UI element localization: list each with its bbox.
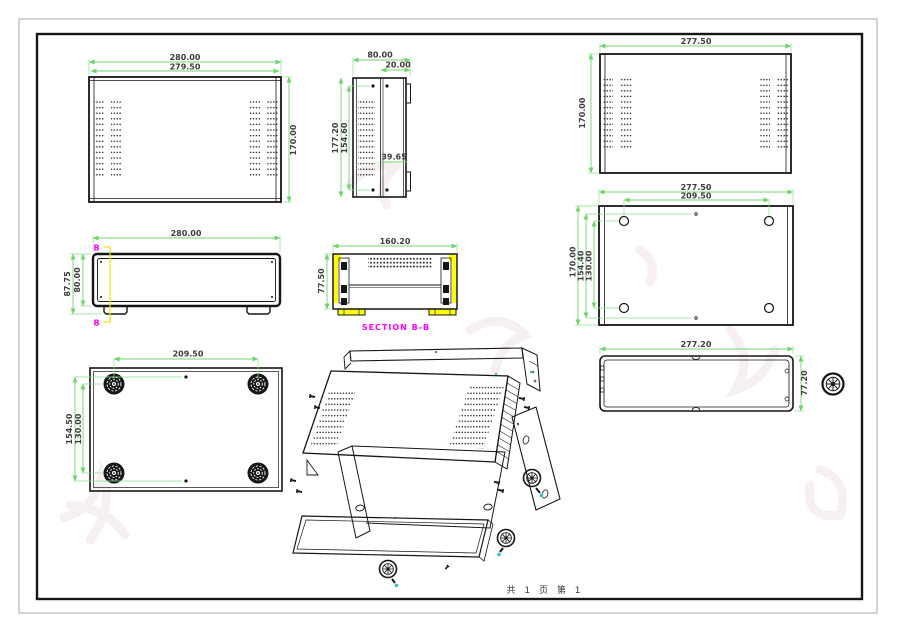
engineering-drawing: 280.00 279.50 170.00 80.00 20.00 177.20 … bbox=[0, 0, 900, 636]
front-panel-view: B B 280.00 87.75 80.00 bbox=[63, 229, 280, 328]
dim-width: 160.20 bbox=[380, 237, 411, 246]
dim-height: 170.00 bbox=[578, 97, 587, 128]
dim-width: 209.50 bbox=[173, 350, 204, 359]
foot-detail-view bbox=[823, 374, 844, 395]
screw-tip bbox=[530, 371, 532, 373]
screw-tip bbox=[540, 494, 544, 498]
dim-height-outer: 87.75 bbox=[63, 271, 72, 297]
drawing-border-frame bbox=[19, 19, 877, 613]
vent-holes bbox=[603, 76, 788, 148]
top-cover-rear-view: 277.50 170.00 bbox=[578, 37, 791, 173]
dimensions: 209.50 154.50 130.00 bbox=[65, 350, 258, 482]
dim-width: 277.20 bbox=[681, 340, 712, 349]
dimensions: 277.50 209.50 170.00 154.40 130.00 bbox=[569, 183, 794, 325]
rubber-foot bbox=[104, 374, 269, 484]
vent-holes bbox=[310, 389, 356, 448]
dim-height: 77.50 bbox=[317, 268, 326, 294]
top-cover-front-view: 280.00 279.50 170.00 bbox=[89, 53, 298, 202]
page-footer: 共 1 页 第 1 bbox=[507, 584, 584, 596]
dim-height-inner: 80.00 bbox=[73, 267, 82, 293]
dim-mid: 39.65 bbox=[381, 153, 407, 162]
section-marker-bottom: B bbox=[93, 319, 100, 328]
dim-width: 80.00 bbox=[367, 51, 393, 60]
section-marker-top: B bbox=[93, 244, 100, 253]
dim-width-outer: 280.00 bbox=[170, 53, 201, 62]
section-bb-view: 160.20 77.50 SECTION B-B bbox=[317, 237, 457, 332]
section-cut-line: B B bbox=[93, 244, 110, 328]
dim-height-inner: 154.60 bbox=[340, 122, 349, 153]
dim-width: 277.50 bbox=[681, 37, 712, 46]
dim-width-inner: 279.50 bbox=[170, 63, 201, 72]
vent-holes bbox=[449, 384, 504, 449]
dim-height-outer: 154.50 bbox=[65, 413, 74, 444]
exploded-rear-panel bbox=[344, 348, 540, 391]
dim-width: 280.00 bbox=[171, 229, 202, 238]
screw-tip bbox=[395, 584, 399, 588]
vent-holes bbox=[358, 101, 375, 177]
vent-holes bbox=[94, 101, 278, 176]
dim-inset: 20.00 bbox=[385, 61, 411, 70]
dim-height: 170.00 bbox=[289, 124, 298, 155]
dim-height-inner: 130.00 bbox=[74, 413, 83, 444]
section-label: SECTION B-B bbox=[362, 323, 430, 332]
exploded-feet bbox=[380, 470, 544, 588]
exploded-top-cover bbox=[303, 371, 520, 475]
exploded-assembly-view bbox=[290, 348, 560, 587]
screw-tip bbox=[495, 373, 497, 375]
bottom-panel-view: 277.50 209.50 170.00 154.40 130.00 bbox=[569, 183, 794, 325]
exploded-chassis-base bbox=[338, 407, 560, 538]
dim-height-outer: 177.20 bbox=[331, 122, 340, 153]
vent-holes bbox=[368, 257, 432, 269]
side-panel-view: 80.00 20.00 177.20 154.60 39.65 bbox=[331, 51, 411, 198]
bottom-feet-view: 209.50 154.50 130.00 bbox=[65, 350, 282, 492]
dim-height-inner: 130.00 bbox=[585, 250, 594, 281]
screw-tip bbox=[497, 553, 501, 557]
dim-height: 77.20 bbox=[800, 370, 809, 396]
dim-width-inner: 209.50 bbox=[681, 192, 712, 201]
exploded-front-panel bbox=[293, 516, 493, 561]
